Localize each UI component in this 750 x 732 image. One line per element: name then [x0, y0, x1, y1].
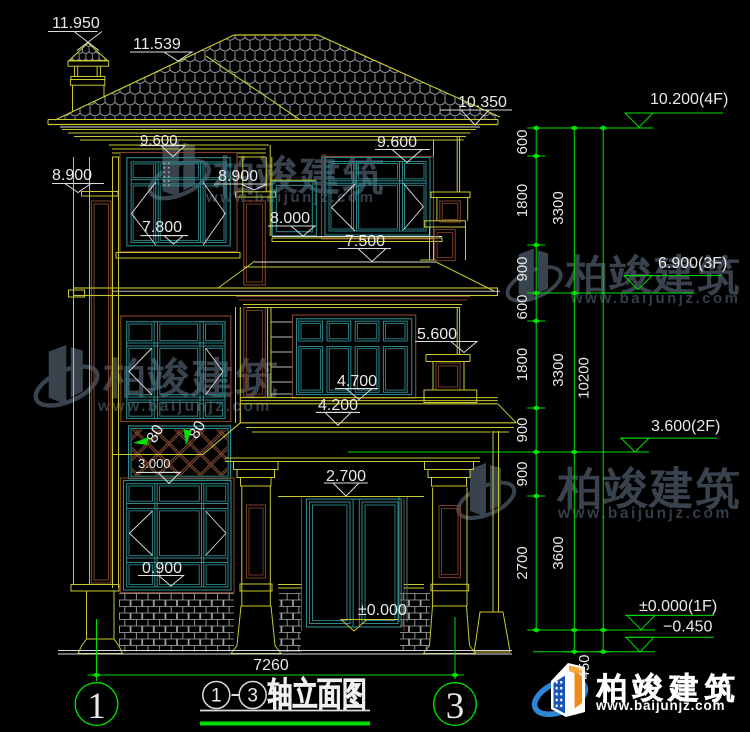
svg-text:3.600(2F): 3.600(2F): [651, 418, 720, 435]
svg-text:9.600: 9.600: [377, 134, 417, 151]
svg-text:±0.000(1F): ±0.000(1F): [639, 598, 717, 615]
svg-text:±0.000: ±0.000: [358, 602, 407, 619]
svg-text:900: 900: [514, 256, 531, 281]
svg-text:10.200(4F): 10.200(4F): [650, 91, 728, 108]
svg-text:4.700: 4.700: [337, 373, 377, 390]
svg-text:11.539: 11.539: [133, 36, 181, 53]
svg-text:9.600: 9.600: [140, 132, 178, 149]
svg-text:3: 3: [446, 686, 465, 727]
svg-text:5.600: 5.600: [417, 326, 457, 343]
svg-text:1800: 1800: [514, 348, 531, 381]
svg-text:600: 600: [514, 129, 531, 154]
svg-text:1: 1: [211, 686, 222, 707]
svg-text:2700: 2700: [514, 546, 531, 579]
svg-text:6.900(3F): 6.900(3F): [658, 255, 727, 272]
svg-text:7.800: 7.800: [142, 219, 182, 236]
svg-text:3.000: 3.000: [138, 456, 171, 471]
svg-text:7260: 7260: [253, 657, 289, 674]
svg-text:8.900: 8.900: [52, 167, 92, 184]
svg-text:3: 3: [247, 686, 258, 707]
svg-text:−0.450: −0.450: [663, 619, 712, 636]
svg-text:www.baijunjz.com: www.baijunjz.com: [557, 505, 732, 522]
svg-text:600: 600: [514, 294, 531, 319]
svg-text:3300: 3300: [550, 191, 567, 224]
svg-text:0.900: 0.900: [142, 560, 182, 577]
svg-text:8.900: 8.900: [218, 168, 258, 185]
svg-text:4.200: 4.200: [318, 397, 358, 414]
svg-text:1800: 1800: [514, 184, 531, 217]
svg-text:8.000: 8.000: [270, 210, 310, 227]
svg-text:7.500: 7.500: [345, 233, 385, 250]
svg-text:3600: 3600: [550, 536, 567, 569]
svg-text:11.950: 11.950: [52, 15, 100, 32]
svg-text:3300: 3300: [550, 353, 567, 386]
svg-text:1: 1: [87, 686, 106, 727]
svg-text:10.350: 10.350: [458, 94, 507, 111]
svg-text:450: 450: [576, 654, 593, 679]
svg-text:www.baijunjz.com: www.baijunjz.com: [595, 698, 725, 713]
svg-text:900: 900: [514, 417, 531, 442]
svg-text:10200: 10200: [576, 357, 593, 399]
svg-text:900: 900: [514, 461, 531, 486]
